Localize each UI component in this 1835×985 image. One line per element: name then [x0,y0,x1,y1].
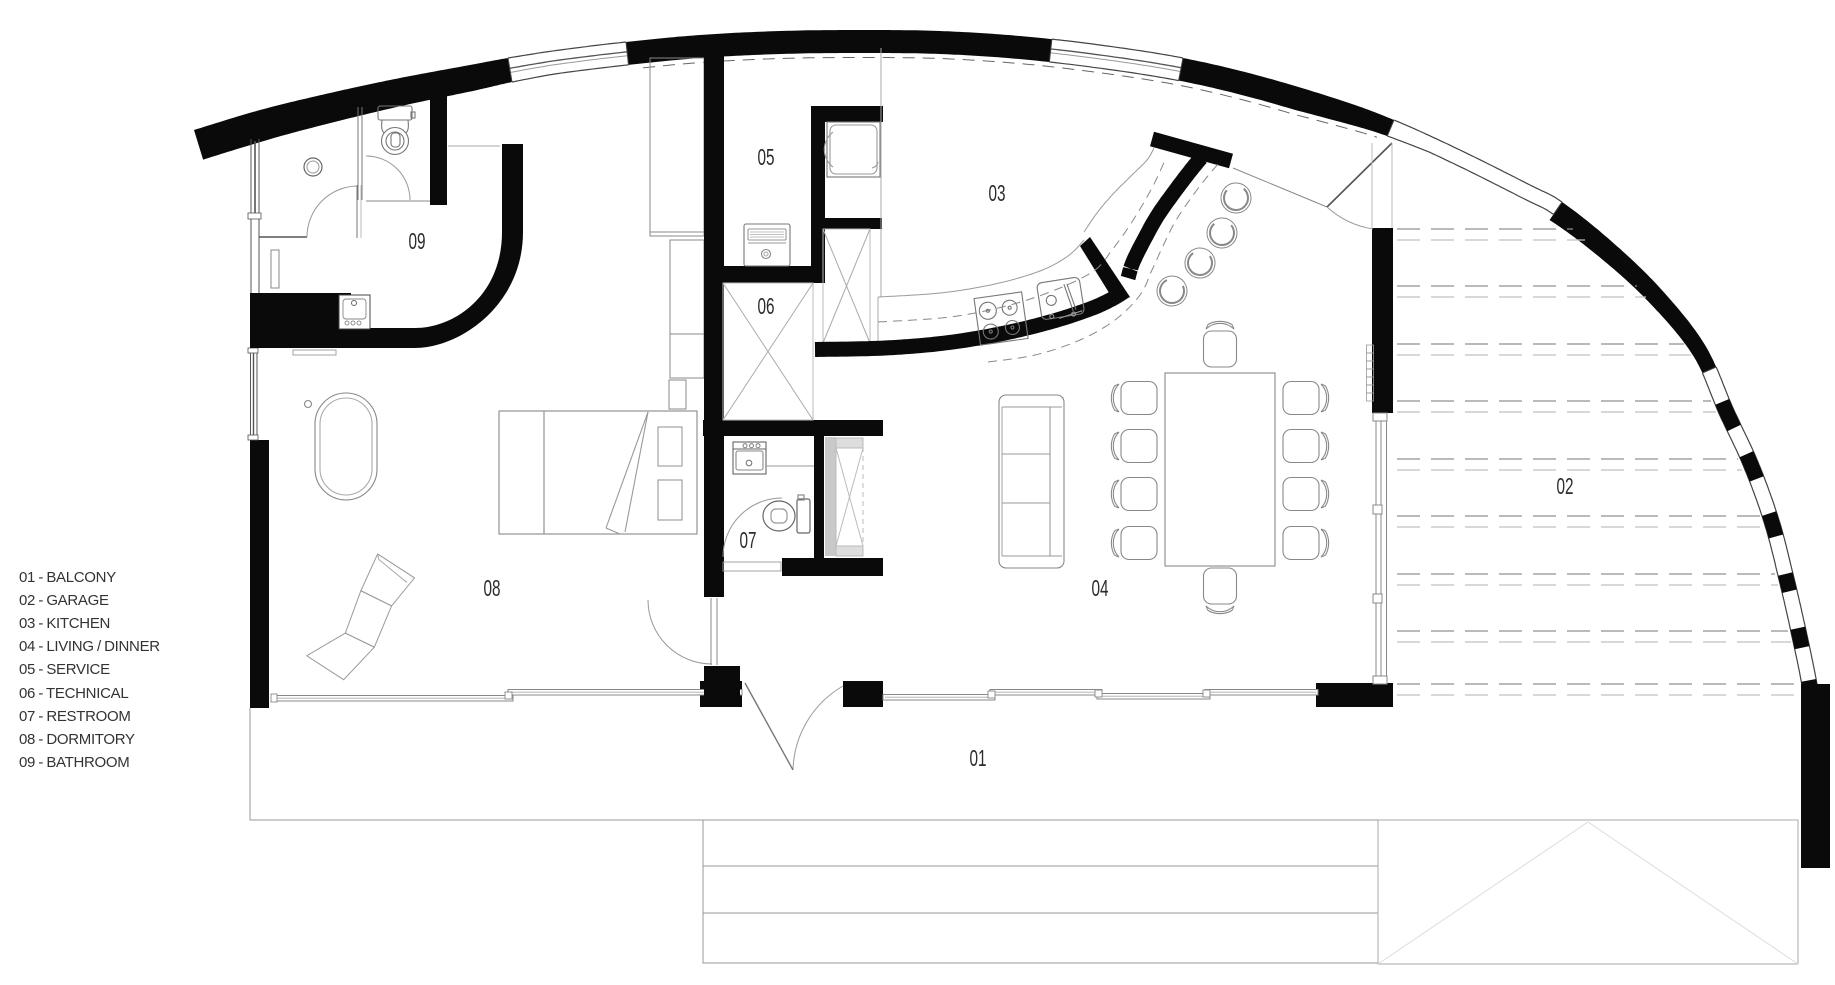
svg-text:04 - LIVING / DINNER: 04 - LIVING / DINNER [19,638,160,655]
svg-text:03: 03 [989,180,1006,206]
svg-text:06: 06 [758,293,775,319]
svg-text:01: 01 [970,745,987,771]
svg-text:07: 07 [740,527,757,553]
svg-text:03 - KITCHEN: 03 - KITCHEN [19,615,110,632]
svg-text:01 - BALCONY: 01 - BALCONY [19,569,116,586]
svg-text:08 - DORMITORY: 08 - DORMITORY [19,731,135,748]
svg-text:02 - GARAGE: 02 - GARAGE [19,592,109,609]
svg-text:02: 02 [1557,473,1574,499]
svg-text:04: 04 [1092,575,1109,601]
svg-text:09: 09 [409,228,426,254]
svg-text:09 - BATHROOM: 09 - BATHROOM [19,754,129,771]
svg-text:05 - SERVICE: 05 - SERVICE [19,661,110,678]
svg-text:07 - RESTROOM: 07 - RESTROOM [19,708,131,725]
svg-text:06 - TECHNICAL: 06 - TECHNICAL [19,685,128,702]
svg-text:08: 08 [484,575,501,601]
svg-text:05: 05 [758,144,775,170]
